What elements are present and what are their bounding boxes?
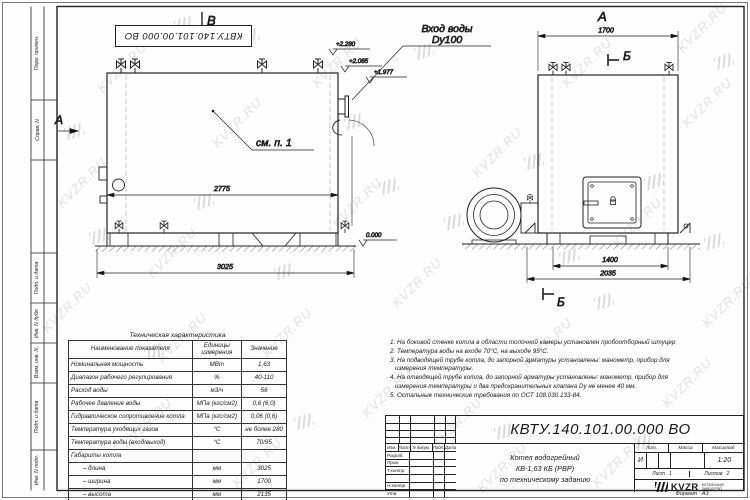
role-label: Разраб. (386, 452, 410, 459)
table-cell: 2135 (242, 489, 287, 500)
table-cell: 40-110 (242, 372, 287, 385)
table-cell: Рабочее давление воды (69, 398, 193, 411)
table-header-row: Наименование показателя Единицы измерени… (69, 341, 287, 359)
table-cell: Диапазон рабочего регулирования (69, 372, 193, 385)
table-cell: МПа (кгс/см2) (192, 398, 242, 411)
margin-label-podp-data-2: Подп. и дата (31, 383, 44, 450)
scale-value: 1:20 (705, 453, 744, 468)
table-cell: м3/ч (192, 385, 242, 398)
doc-number: КВТУ.140.101.00.000 ВО (456, 416, 745, 444)
product-description: Котел водогрейный КВ-1,63 КБ (РВР) по те… (456, 444, 635, 492)
margin-label-sprav-n: Справ. N (31, 100, 44, 160)
table-cell: 0,6 (6,0) (242, 398, 287, 411)
note-line: 2. Температура воды на входе 70°С, на вы… (390, 348, 742, 357)
table-header-cell: Единицы измерения (192, 341, 242, 359)
role-row: Пров. (386, 460, 456, 468)
table-cell: Гидравлическое сопротивление котла (69, 411, 193, 424)
elevation-inlet-label: +1.977 (374, 69, 394, 76)
note-line: 3. На подводящей трубе котла, до запорно… (390, 357, 742, 366)
role-label: Пров. (386, 460, 410, 467)
tech-table-title: Техническая характеристика (68, 332, 287, 339)
table-cell: 56 (242, 385, 287, 398)
table-cell: МВт (192, 359, 242, 372)
margin-label-podp-data-1: Подп. и дата (31, 253, 44, 303)
role-row: Н.контр. (386, 483, 456, 491)
table-row: – ширинамм1700 (69, 476, 287, 489)
role-row: Т.контр. (386, 467, 456, 475)
direction-arrow-a-label: А (54, 113, 63, 127)
role-label: Утв. (386, 490, 410, 497)
description-line: КВ-1,63 КБ (РВР) (516, 463, 574, 474)
revision-grid (386, 416, 456, 444)
mass-value (671, 453, 705, 468)
table-cell: Температура воды (вход/выход) (69, 437, 193, 450)
role-row (386, 475, 456, 483)
tech-table: Наименование показателя Единицы измерени… (68, 340, 287, 500)
note-line: 5. Остальные технические требования по О… (390, 392, 742, 401)
margin-label-inv-dubl: Инв. N дубл. (31, 303, 44, 343)
role-row: Разраб. (386, 452, 456, 460)
table-cell: 1700 (242, 476, 287, 489)
side-view-dimensions: А 1700 Б Б 1400 2035 (527, 9, 690, 309)
see-note-label: см. п. 1 (256, 137, 292, 149)
table-cell: Расход воды (69, 385, 193, 398)
role-label (386, 475, 410, 482)
table-cell: 1,63 (242, 359, 287, 372)
view-a-label: А (597, 9, 607, 24)
rev-col-ndokum: N докум. (411, 444, 433, 451)
format-label: Формат (675, 491, 697, 497)
table-cell: Номинальная мощность (69, 359, 193, 372)
role-label: Н.контр. (386, 483, 410, 490)
sheets-total: 2 (727, 471, 730, 477)
description-line: Котел водогрейный (510, 452, 579, 463)
margin-label-inv-podl: Инв. N подл. (31, 450, 44, 490)
top-stamp-code: КВТУ.140.101.00.000 ВО (115, 25, 252, 47)
table-cell: мм (192, 476, 242, 489)
table-row: Габариты котла (69, 450, 287, 463)
section-mark-bottom-label: Б (557, 295, 565, 309)
elevation-top-label: +2.280 (336, 41, 356, 48)
table-cell: 0,06 (0,6) (242, 411, 287, 424)
note-line: 1. На боковой стенке котла в области топ… (390, 339, 742, 348)
furnace-door (583, 177, 641, 228)
table-cell: % (192, 372, 242, 385)
rev-col-podp: Подп. (433, 444, 445, 451)
table-row: – высотамм2135 (69, 489, 287, 500)
table-row: Рабочее давление водыМПа (кгс/см2)0,6 (6… (69, 398, 287, 411)
role-row: Утв. (386, 490, 456, 497)
rev-col-data: Дата (445, 444, 456, 451)
title-block-right: Лит. Масса Масштаб И 1:20 Лист 1 Листов … (635, 444, 744, 492)
side-view-drawing (462, 62, 700, 249)
rev-col-list: Лист (399, 444, 411, 451)
table-cell (192, 450, 242, 463)
sheets-label: Листов (704, 471, 722, 477)
table-cell: °С (192, 424, 242, 437)
table-header-cell: Наименование показателя (69, 341, 193, 359)
note-line: измерения температуры. (390, 365, 742, 374)
table-row: Температура воды (вход/выход)°С70/95 (69, 437, 287, 450)
dim-1400-label: 1400 (602, 257, 618, 264)
technical-notes: 1. На боковой стенке котла в области топ… (390, 339, 742, 401)
role-rows: Разраб.Пров.Т.контр.Н.контр.Утв. (386, 452, 456, 492)
table-cell: МПа (кгс/см2) (192, 411, 242, 424)
format-value: А3 (702, 491, 709, 497)
revision-header-row: Изм. Лист N докум. Подп. Дата (386, 444, 456, 452)
blower-fan (467, 188, 538, 244)
dim-2035-label: 2035 (599, 271, 616, 278)
note-line: 4. На отводящей трубе котла, до запорной… (390, 374, 742, 383)
table-cell: °С (192, 437, 242, 450)
note-line: измерения температуры и два предохраните… (390, 383, 742, 392)
table-row: Номинальная мощностьМВт1,63 (69, 359, 287, 372)
table-cell: – длина (69, 463, 193, 476)
rev-col-izm: Изм. (386, 444, 399, 451)
table-cell: Габариты котла (69, 450, 193, 463)
scale-header: Масштаб (703, 444, 744, 452)
dim-2775-label: 2775 (213, 184, 231, 193)
drawing-sheet: KVZR.RUKVZR.RUKVZR.RUKVZR.RUKVZR.RUKVZR.… (0, 0, 750, 500)
sheet-label: Лист (652, 471, 665, 477)
dim-3025-label: 3025 (217, 262, 234, 271)
lit-value: И (635, 453, 647, 468)
section-mark-top-label: Б (623, 49, 631, 63)
table-cell: 70/95 (242, 437, 287, 450)
table-cell: мм (192, 489, 242, 500)
margin-label-perv-primen: Перв. примен. (31, 6, 44, 100)
elevation-zero-label: 0.000 (366, 232, 382, 239)
table-cell: 3025 (242, 463, 287, 476)
mass-header: Масса (669, 444, 703, 452)
table-row: – длинамм3025 (69, 463, 287, 476)
front-view-drawing (95, 59, 374, 252)
table-cell (242, 450, 287, 463)
table-cell: – ширина (69, 476, 193, 489)
dim-1700-label: 1700 (598, 28, 614, 35)
table-header-cell: Значение (242, 341, 287, 359)
elevation-mid-label: +2.085 (349, 58, 369, 65)
table-cell: мм (192, 463, 242, 476)
table-cell: Температура уходящих газов (69, 424, 193, 437)
title-block: КВТУ.140.101.00.000 ВО Изм. Лист N докум… (385, 415, 744, 491)
table-row: Температура уходящих газов°Сне более 280 (69, 424, 287, 437)
table-row: Гидравлическое сопротивление котлаМПа (к… (69, 411, 287, 424)
tech-table-block: Техническая характеристика Наименование … (68, 332, 287, 500)
sheet-number: 1 (669, 471, 672, 477)
table-cell: – высота (69, 489, 193, 500)
format-note: Формат А3 (640, 491, 744, 497)
front-view-dimensions: 2775 3025 +2.280 +2.085 +1.977 0.000 Вхо… (54, 12, 491, 278)
table-row: Расход водым3/ч56 (69, 385, 287, 398)
inlet-label-line2: Dy100 (432, 34, 463, 46)
margin-label-vzam-inv: Взам. инв. N (31, 343, 44, 383)
role-label: Т.контр. (386, 467, 410, 474)
table-row: Диапазон рабочего регулирования%40-110 (69, 372, 287, 385)
table-cell: не более 280 (242, 424, 287, 437)
description-line: по техническому заданию (500, 474, 590, 485)
lit-header: Лит. (635, 444, 669, 452)
